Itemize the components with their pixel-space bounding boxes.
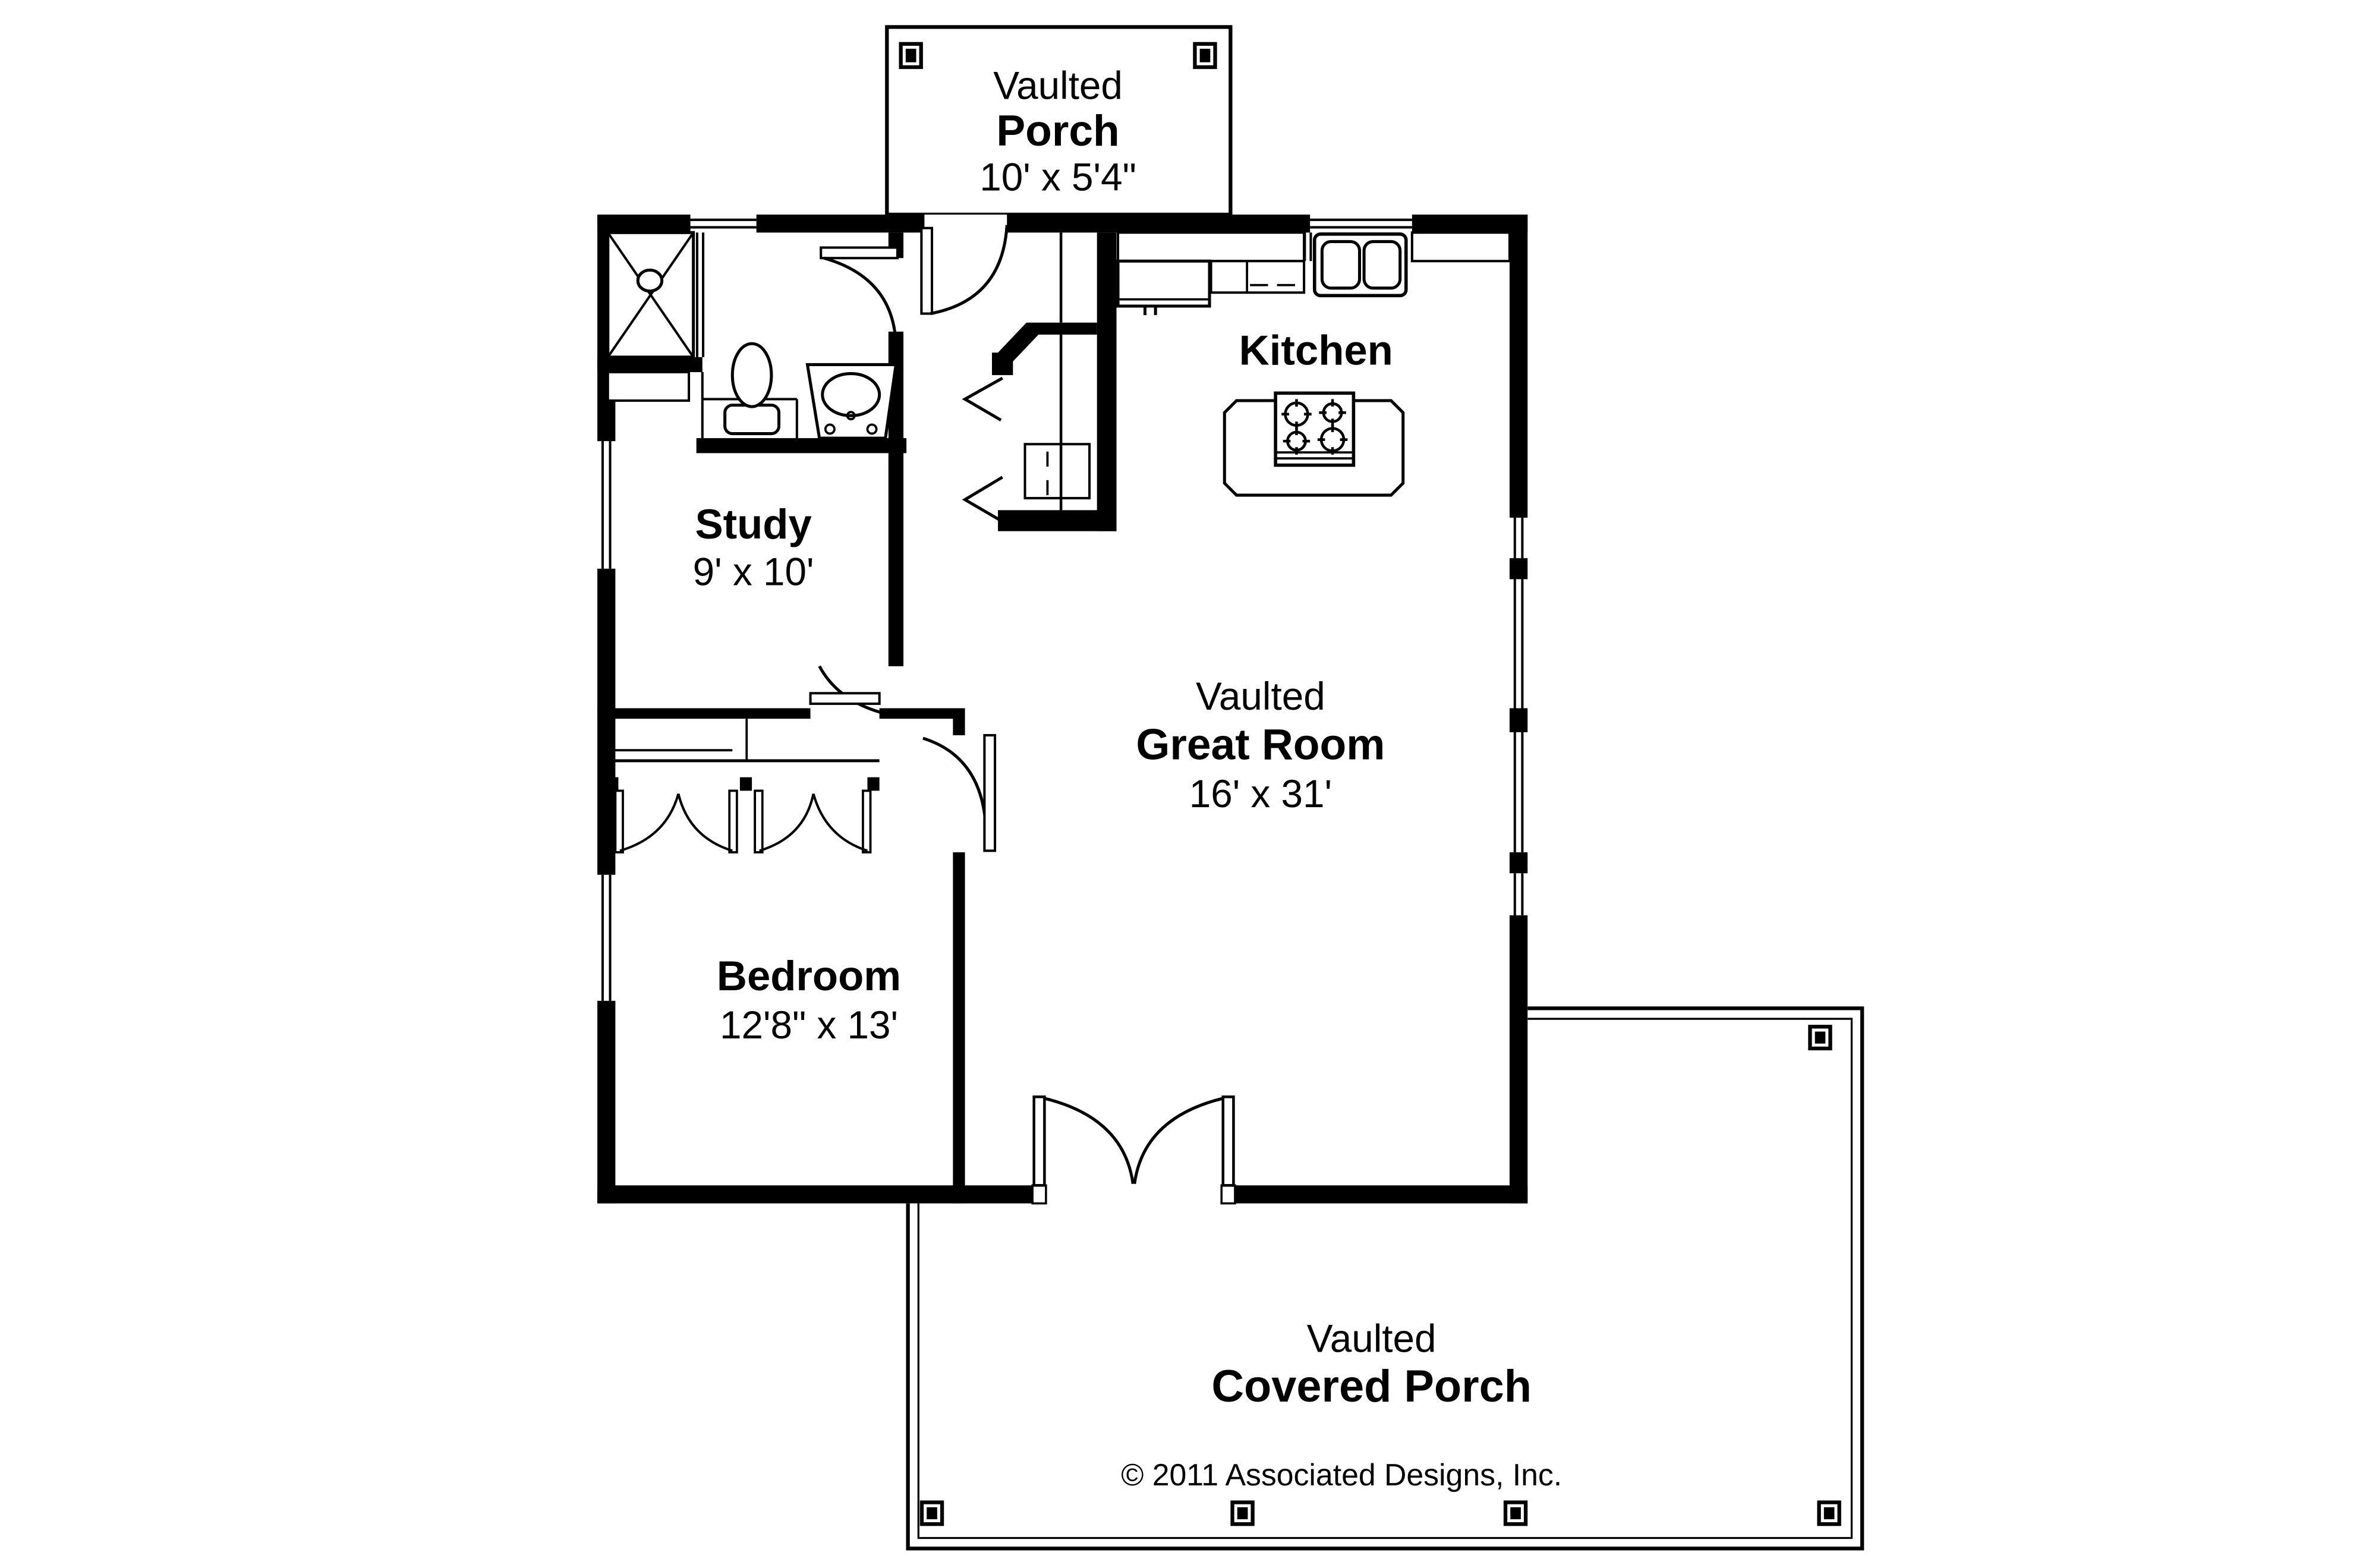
bedroom-label: Bedroom	[717, 952, 901, 999]
great-room-label-dims: 16' x 31'	[1189, 772, 1332, 816]
floor-plan-drawing: Vaulted Porch 10' x 5'4" Kitchen Study 9…	[0, 0, 2353, 1568]
cooktop-island-icon	[1224, 393, 1403, 495]
vanity-sink-icon	[807, 364, 896, 438]
kitchen-sink-icon	[1315, 234, 1406, 296]
great-room-label-vaulted: Vaulted	[1196, 675, 1325, 718]
study-niche	[608, 372, 689, 401]
entry-porch-label-vaulted: Vaulted	[993, 64, 1123, 108]
bedroom-label-dims: 12'8" x 13'	[720, 1003, 898, 1047]
study-label: Study	[695, 500, 811, 547]
entry-porch-label-name: Porch	[996, 106, 1119, 155]
floor-plan-page: Vaulted Porch 10' x 5'4" Kitchen Study 9…	[0, 0, 2353, 1568]
copyright-text: © 2011 Associated Designs, Inc.	[1121, 1457, 1562, 1492]
shower-icon	[608, 232, 694, 357]
porch-post-icon	[1504, 1500, 1527, 1526]
covered-porch-label-name: Covered Porch	[1211, 1361, 1532, 1412]
refrigerator-icon	[1118, 261, 1209, 315]
great-room-label-name: Great Room	[1136, 720, 1385, 769]
porch-post-icon	[1230, 1500, 1254, 1526]
kitchen-label: Kitchen	[1239, 326, 1393, 373]
porch-post-icon	[1193, 42, 1217, 69]
porch-post-icon	[1808, 1025, 1832, 1050]
porch-post-icon	[920, 1500, 944, 1526]
water-heater-icon	[1025, 444, 1090, 498]
dishwasher-counter	[1211, 261, 1305, 292]
porch-post-icon	[1817, 1500, 1841, 1526]
covered-porch-label-vaulted: Vaulted	[1307, 1317, 1437, 1360]
porch-post-icon	[899, 42, 922, 69]
entry-porch-label-dims: 10' x 5'4"	[979, 156, 1136, 199]
study-label-dims: 9' x 10'	[693, 550, 814, 594]
